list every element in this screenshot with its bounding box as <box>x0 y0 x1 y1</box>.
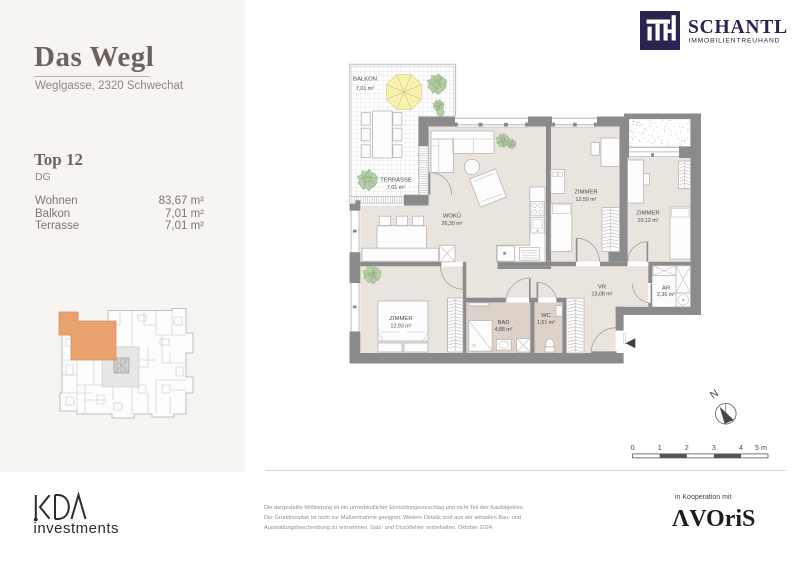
svg-text:BAD: BAD <box>497 320 509 326</box>
svg-text:3: 3 <box>712 443 716 452</box>
svg-text:7,01 m²: 7,01 m² <box>387 185 405 191</box>
svg-text:1: 1 <box>658 443 662 452</box>
svg-text:12,93 m²: 12,93 m² <box>391 324 412 330</box>
svg-text:WOKÜ: WOKÜ <box>443 213 461 220</box>
svg-text:26,30 m²: 26,30 m² <box>442 221 463 227</box>
svg-text:7,01 m²: 7,01 m² <box>356 86 374 92</box>
svg-text:AR: AR <box>662 286 670 292</box>
svg-text:13,08 m²: 13,08 m² <box>592 291 613 297</box>
svg-text:4,88 m²: 4,88 m² <box>495 327 513 333</box>
svg-text:1,61 m²: 1,61 m² <box>537 320 555 326</box>
svg-text:10,12 m²: 10,12 m² <box>638 218 659 224</box>
svg-text:ZIMMER: ZIMMER <box>574 190 597 196</box>
svg-text:N: N <box>708 387 721 401</box>
svg-text:2,36 m²: 2,36 m² <box>657 292 675 298</box>
svg-text:BALKON: BALKON <box>353 77 377 83</box>
svg-text:ZIMMER: ZIMMER <box>636 211 659 217</box>
svg-text:2: 2 <box>685 443 689 452</box>
svg-text:0: 0 <box>631 443 635 452</box>
svg-text:4: 4 <box>739 443 743 452</box>
svg-text:VR: VR <box>598 285 606 291</box>
svg-text:TERRASSE: TERRASSE <box>380 178 412 184</box>
svg-text:ZIMMER: ZIMMER <box>389 316 412 322</box>
svg-text:5 m: 5 m <box>755 443 767 452</box>
svg-text:WC: WC <box>541 313 552 319</box>
svg-text:12,59 m²: 12,59 m² <box>576 197 597 203</box>
